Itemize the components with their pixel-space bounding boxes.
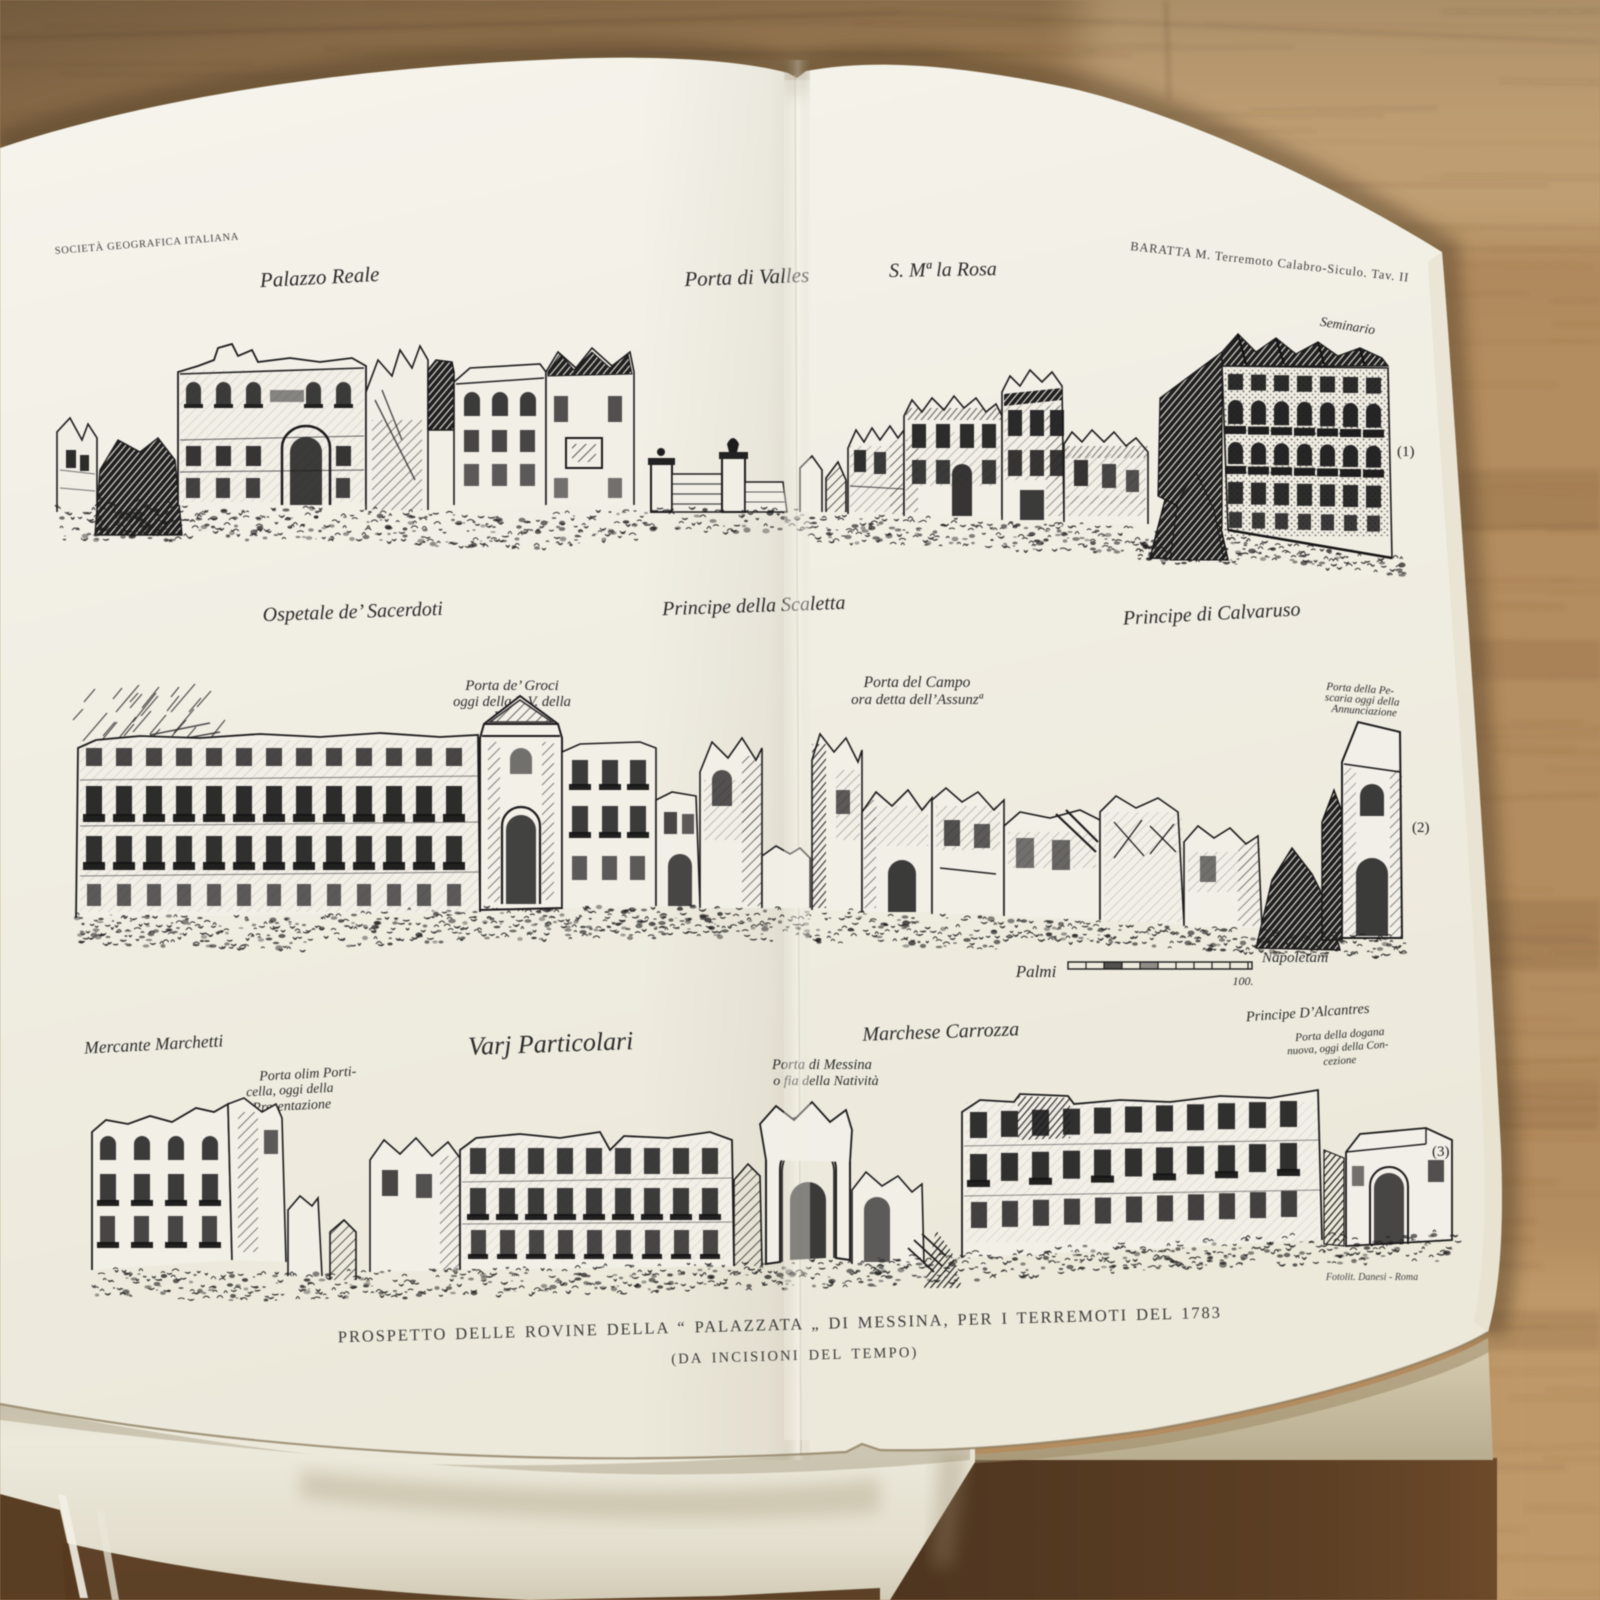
svg-text:(2): (2) bbox=[1412, 820, 1430, 836]
svg-text:Porta del Campo: Porta del Campo bbox=[863, 674, 971, 691]
svg-text:(3): (3) bbox=[1432, 1144, 1450, 1160]
svg-text:cezione: cezione bbox=[1323, 1054, 1357, 1068]
svg-text:Napoletani: Napoletani bbox=[1261, 950, 1329, 966]
svg-text:S. Mª la Rosa: S. Mª la Rosa bbox=[889, 258, 997, 282]
svg-text:100.: 100. bbox=[1233, 974, 1254, 988]
svg-text:Varj Particolari: Varj Particolari bbox=[468, 1026, 634, 1061]
svg-text:(1): (1) bbox=[1397, 444, 1415, 460]
svg-text:Porta de’ Groci: Porta de’ Groci bbox=[464, 678, 559, 694]
svg-text:Palmi: Palmi bbox=[1015, 962, 1057, 981]
svg-text:ora detta dell’Assunzª: ora detta dell’Assunzª bbox=[851, 692, 983, 708]
svg-text:Fotolit. Danesi - Roma: Fotolit. Danesi - Roma bbox=[1325, 1272, 1418, 1283]
